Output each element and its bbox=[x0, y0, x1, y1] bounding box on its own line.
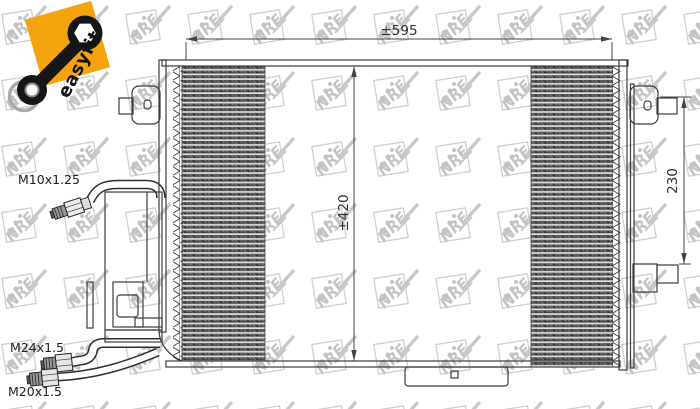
service-valve-fitting bbox=[49, 195, 93, 222]
condenser-core-left bbox=[182, 66, 265, 361]
inlet-thread-label: M24x1.5 bbox=[10, 340, 64, 355]
condenser-core-right bbox=[531, 66, 613, 367]
dimension-height-label: ±420 bbox=[336, 194, 352, 231]
easyfit-badge: easyfit bbox=[6, 0, 124, 118]
valve-thread-label: M10x1.25 bbox=[18, 172, 80, 187]
dimension-bracket-spacing: 230 bbox=[660, 97, 691, 264]
valve-tube bbox=[90, 185, 161, 202]
top-header-tube bbox=[162, 60, 628, 66]
bottom-mount-plate bbox=[405, 367, 508, 386]
fin-edge-right bbox=[613, 66, 621, 367]
dimension-height: ±420 bbox=[336, 66, 357, 361]
dimension-width-label: ±595 bbox=[380, 23, 417, 39]
pipe-assembly bbox=[26, 185, 162, 389]
mount-hole bbox=[451, 371, 458, 378]
mounting-bracket-left bbox=[119, 86, 160, 124]
bracket-hole-left bbox=[144, 100, 151, 109]
mount-rail-right bbox=[631, 84, 635, 368]
wrench-icon bbox=[6, 0, 124, 118]
mounting-bracket-right bbox=[630, 86, 677, 124]
dimension-width: ±595 bbox=[186, 23, 612, 60]
condenser-body bbox=[119, 60, 678, 386]
dimension-bracket-label: 230 bbox=[665, 168, 681, 194]
outlet-thread-label: M20x1.5 bbox=[8, 384, 62, 399]
fin-edge-left bbox=[173, 66, 182, 361]
bracket-hole-right bbox=[644, 101, 651, 110]
manifold-block bbox=[87, 192, 162, 342]
catalog-drawing-page: { "badge": { "label": "easyfit" }, "wate… bbox=[0, 0, 700, 409]
receiver-block bbox=[633, 264, 678, 292]
